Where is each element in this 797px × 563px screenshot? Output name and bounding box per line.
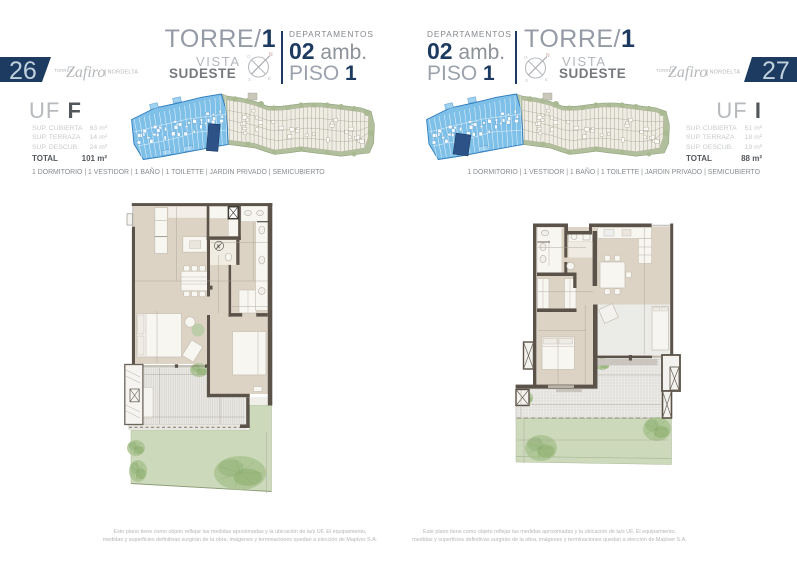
svg-text:Zafiro: Zafiro <box>66 64 105 81</box>
svg-text:N: N <box>546 53 550 59</box>
svg-text:E: E <box>545 77 548 82</box>
svg-text:27: 27 <box>762 57 790 82</box>
svg-text:|: | <box>104 67 106 77</box>
svg-text:Zafiro: Zafiro <box>668 64 707 81</box>
svg-text:S: S <box>525 78 528 83</box>
svg-text:E: E <box>268 76 271 81</box>
svg-text:O: O <box>247 54 251 59</box>
svg-text:NORDELTA: NORDELTA <box>108 70 139 76</box>
svg-text:26: 26 <box>9 57 37 82</box>
svg-text:NORDELTA: NORDELTA <box>710 70 741 76</box>
svg-text:|: | <box>706 67 708 77</box>
svg-text:S: S <box>248 77 251 82</box>
svg-text:N: N <box>269 52 273 58</box>
svg-text:O: O <box>524 55 528 60</box>
